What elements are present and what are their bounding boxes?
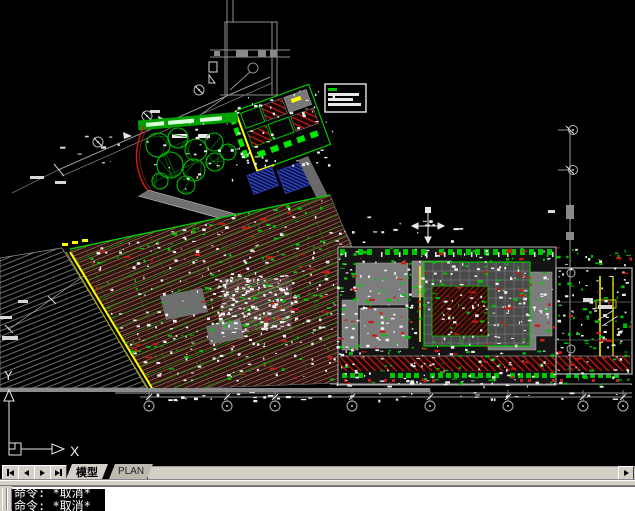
next-tab-button[interactable]	[34, 465, 51, 480]
first-tab-button[interactable]	[2, 465, 19, 480]
last-tab-button[interactable]	[50, 465, 67, 480]
tab-model-label: 模型	[76, 464, 98, 480]
ucs-y-label: Y	[4, 368, 13, 383]
layout-tab-bar: 模型 PLAN	[0, 463, 635, 479]
tab-plan[interactable]: PLAN	[109, 464, 153, 479]
command-line-2: 命令: *取消*	[12, 500, 635, 511]
prev-tab-button[interactable]	[18, 465, 35, 480]
command-history[interactable]: 命令: *取消* 命令: *取消*	[12, 486, 635, 511]
autocad-window: Y X 模型 P	[0, 0, 635, 511]
floor-plan-drawing[interactable]: Y X	[0, 0, 635, 463]
command-line-1: 命令: *取消*	[12, 487, 635, 500]
tab-scrollbar-track[interactable]	[148, 466, 635, 479]
model-space-canvas[interactable]: Y X	[0, 0, 635, 463]
prev-tab-icon	[24, 470, 29, 476]
scroll-right-icon	[624, 470, 629, 476]
command-window-grip[interactable]	[0, 486, 12, 511]
legend-box	[325, 84, 366, 112]
tab-model[interactable]: 模型	[66, 464, 108, 479]
ucs-x-label: X	[70, 443, 80, 459]
tab-plan-label: PLAN	[118, 466, 144, 477]
next-tab-icon	[40, 470, 45, 476]
scrollbar-right-button[interactable]	[618, 466, 634, 480]
command-window[interactable]: 命令: *取消* 命令: *取消*	[0, 479, 635, 511]
